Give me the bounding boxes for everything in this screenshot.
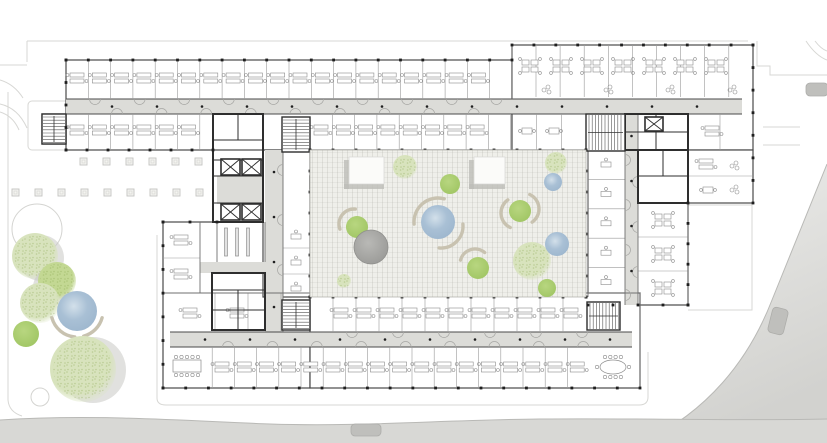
floor-plan-page	[0, 0, 827, 443]
corridor	[66, 99, 742, 114]
pergola-column	[150, 189, 157, 196]
corridor	[265, 150, 283, 332]
pergola-column	[103, 158, 110, 165]
pond	[545, 232, 569, 256]
pergola-column	[149, 158, 156, 165]
courtyard-pavilion	[349, 157, 384, 184]
tree	[440, 174, 460, 194]
pergola-column	[195, 158, 202, 165]
floor-plan-drawing	[0, 0, 827, 443]
parked-car	[806, 83, 827, 96]
wing-east-annex	[688, 150, 753, 203]
pergola-column	[172, 158, 179, 165]
corridor	[625, 114, 638, 305]
corridor	[200, 262, 283, 273]
pergola-column	[127, 189, 134, 196]
pond	[544, 173, 562, 191]
pergola-column	[196, 189, 203, 196]
tree	[467, 257, 489, 279]
corridor	[217, 176, 263, 204]
courtyard-pavilion	[474, 157, 505, 184]
pergola-column	[173, 189, 180, 196]
pergola-column	[81, 189, 88, 196]
parked-car	[351, 424, 381, 436]
pergola-column	[12, 189, 19, 196]
courtyard	[310, 150, 586, 297]
corridor	[170, 332, 632, 347]
tree	[538, 279, 556, 297]
tree	[13, 321, 39, 347]
pergola-column	[58, 189, 65, 196]
pergola-column	[126, 158, 133, 165]
pergola-column	[80, 158, 87, 165]
pergola-column	[104, 189, 111, 196]
meeting-table	[173, 360, 201, 372]
tree	[509, 200, 531, 222]
pond	[421, 205, 455, 239]
pond	[57, 291, 97, 331]
pergola-column	[35, 189, 42, 196]
meeting-table-oval	[600, 360, 626, 374]
